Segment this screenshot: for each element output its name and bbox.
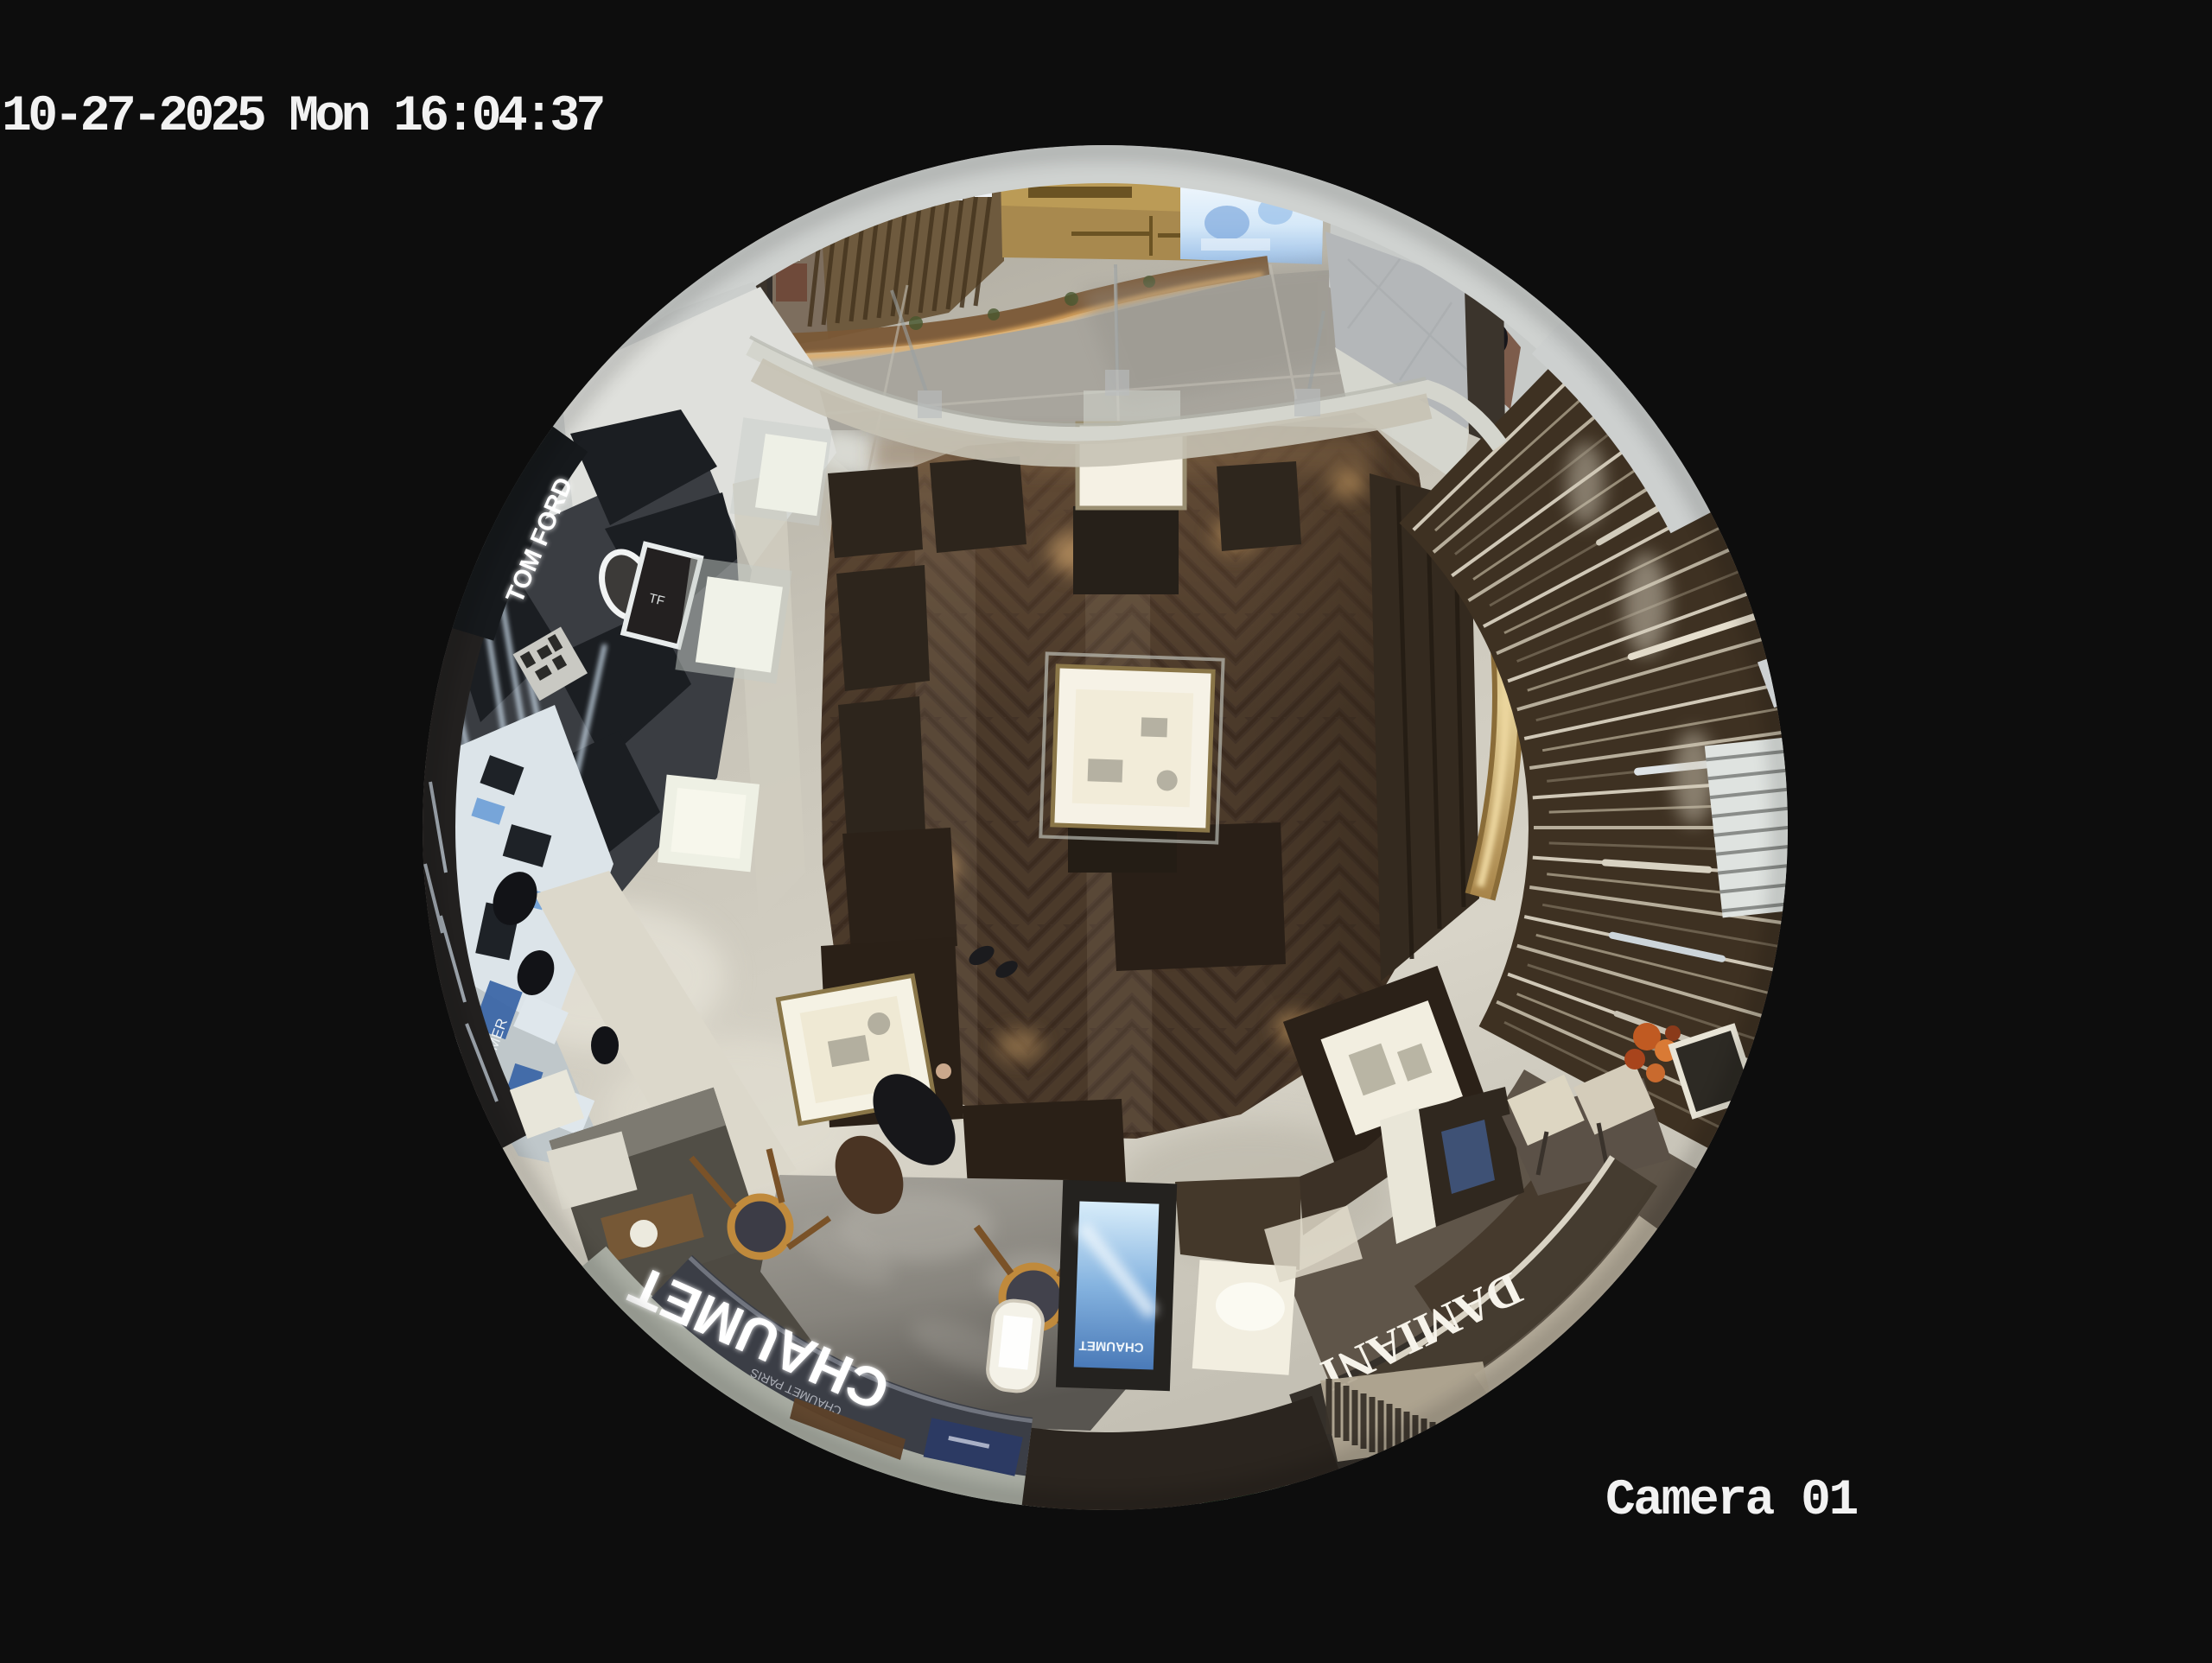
svg-text:Camera 01: Camera 01	[1605, 1473, 1857, 1529]
svg-text:10-27-2025 Mon 16:04:37: 10-27-2025 Mon 16:04:37	[2, 89, 603, 145]
svg-text:CHAUMET: CHAUMET	[1078, 1338, 1144, 1355]
